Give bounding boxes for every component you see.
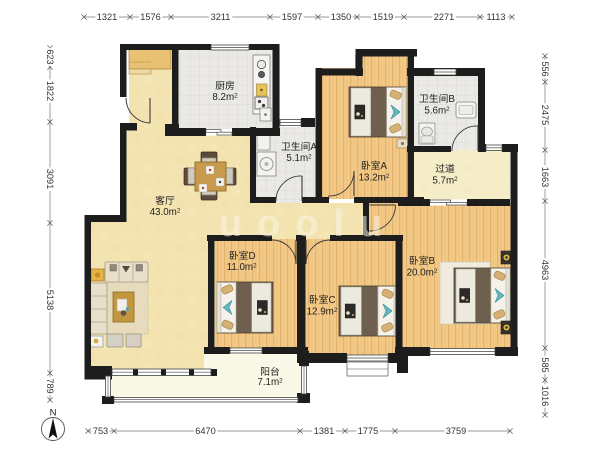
svg-text:1321: 1321 [97,12,117,22]
svg-text:3759: 3759 [446,426,466,436]
svg-text:13.2m2: 13.2m2 [359,173,390,184]
svg-text:20.0m2: 20.0m2 [407,268,438,279]
svg-text:3211: 3211 [211,12,231,22]
svg-text:1576: 1576 [140,12,160,22]
svg-text:3091: 3091 [45,169,55,189]
svg-text:1822: 1822 [45,81,55,101]
svg-text:5138: 5138 [45,290,55,310]
svg-text:uoolu: uoolu [219,203,397,245]
svg-text:C: C [329,295,336,306]
svg-text:D: D [249,251,256,262]
svg-text:1350: 1350 [331,12,351,22]
svg-text:753: 753 [93,426,108,436]
svg-text:43.0m2: 43.0m2 [150,207,181,218]
svg-text:6470: 6470 [195,426,215,436]
svg-text:1519: 1519 [373,12,393,22]
svg-text:A: A [310,142,317,153]
svg-text:585: 585 [540,357,550,372]
svg-text:1381: 1381 [314,426,334,436]
svg-text:556: 556 [540,61,550,76]
svg-text:B: B [448,94,455,105]
svg-text:1775: 1775 [358,426,378,436]
svg-text:1016: 1016 [540,386,550,406]
svg-text:789: 789 [45,378,55,393]
svg-text:2271: 2271 [434,12,454,22]
svg-text:11.0m2: 11.0m2 [227,262,258,273]
svg-text:1597: 1597 [282,12,302,22]
svg-text:2475: 2475 [540,105,550,125]
svg-text:12.9m2: 12.9m2 [307,307,338,318]
svg-text:A: A [381,161,388,172]
svg-text:1113: 1113 [486,12,505,22]
svg-text:623: 623 [45,49,55,64]
svg-text:N: N [50,408,57,419]
svg-text:B: B [429,256,436,267]
svg-text:4963: 4963 [540,260,550,280]
svg-text:1663: 1663 [540,167,550,187]
